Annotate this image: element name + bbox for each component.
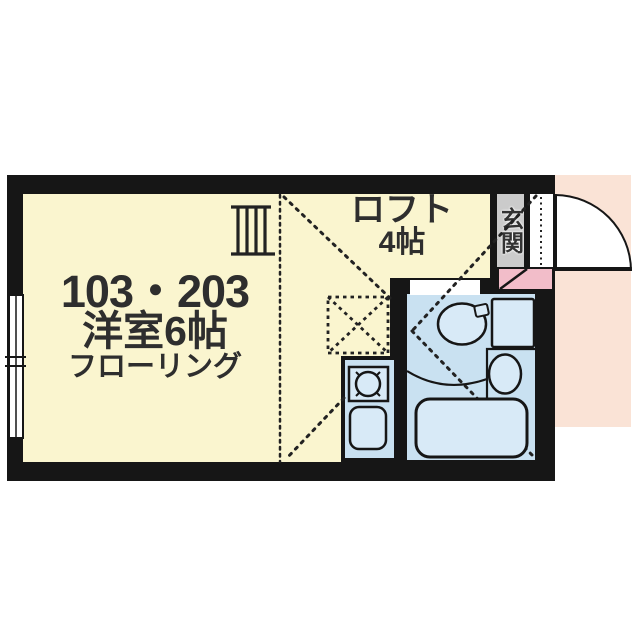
entrance-label: 玄関 <box>494 207 528 255</box>
window-left <box>8 294 24 439</box>
kitchen-floor <box>345 360 394 458</box>
loft-label: ロフト <box>338 193 466 229</box>
floorplan-image: 玄関 <box>0 0 640 640</box>
room-size-label: 洋室6帖 <box>30 310 280 353</box>
bathroom-door-opening <box>410 280 480 295</box>
entrance-threshold <box>530 194 553 268</box>
bathroom-floor <box>407 294 535 460</box>
entrance-floor: 玄関 <box>497 194 524 267</box>
loft-size-label: 4帖 <box>338 227 466 259</box>
entrance-step <box>497 267 554 291</box>
flooring-label: フローリング <box>30 352 280 382</box>
